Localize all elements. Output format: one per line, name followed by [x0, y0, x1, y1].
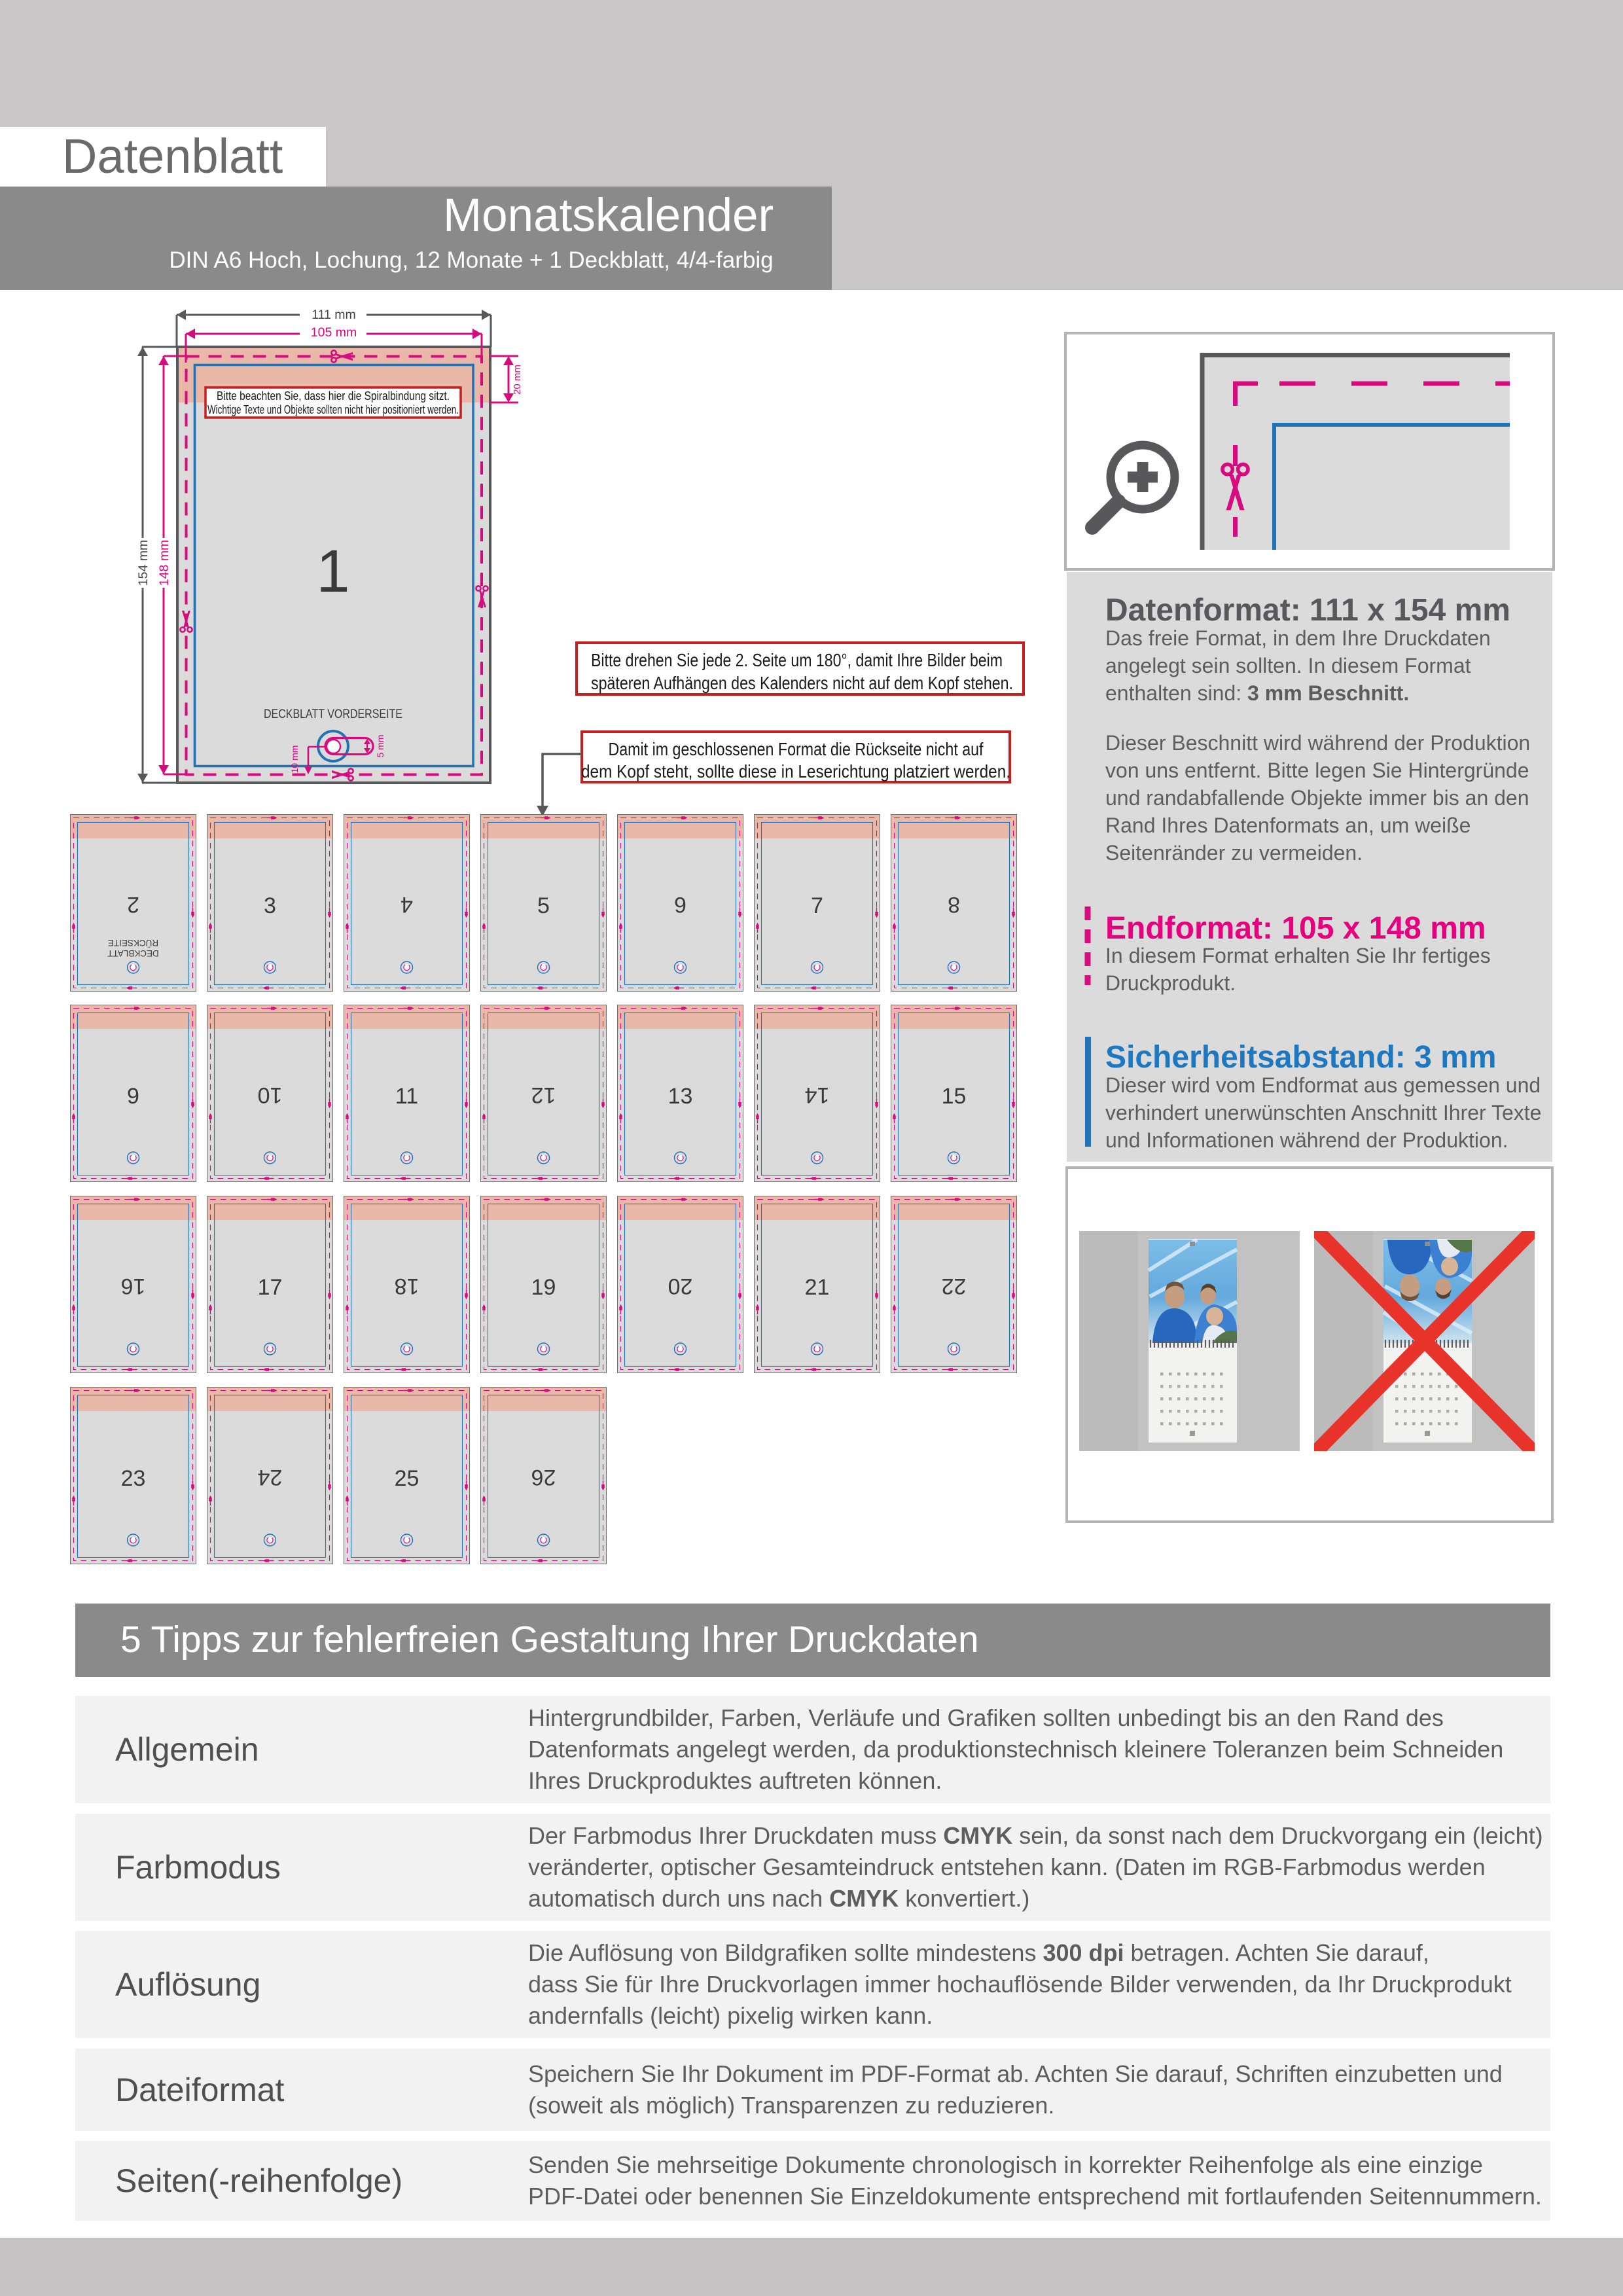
- svg-text:DECKBLATT: DECKBLATT: [107, 948, 159, 958]
- svg-text:18: 18: [395, 1274, 419, 1299]
- svg-text:6: 6: [674, 892, 687, 917]
- svg-text:5 mm: 5 mm: [375, 735, 385, 758]
- svg-text:8: 8: [948, 892, 960, 917]
- svg-text:14: 14: [805, 1083, 830, 1107]
- svg-text:17: 17: [258, 1275, 283, 1300]
- svg-text:16: 16: [121, 1274, 146, 1299]
- svg-text:2: 2: [127, 892, 139, 917]
- svg-text:148 mm: 148 mm: [157, 540, 171, 586]
- svg-text:3: 3: [264, 893, 276, 918]
- svg-text:13: 13: [668, 1084, 693, 1109]
- svg-text:23: 23: [121, 1466, 146, 1491]
- svg-text:DECKBLATT VORDERSEITE: DECKBLATT VORDERSEITE: [264, 707, 402, 721]
- svg-text:12: 12: [531, 1083, 556, 1107]
- svg-text:15: 15: [942, 1084, 967, 1109]
- svg-text:26: 26: [531, 1465, 556, 1490]
- svg-text:Damit im geschlossenen Format: Damit im geschlossenen Format die Rückse…: [609, 739, 984, 759]
- svg-text:20 mm: 20 mm: [512, 365, 523, 395]
- svg-text:21: 21: [805, 1275, 830, 1300]
- svg-text:7: 7: [811, 893, 823, 918]
- svg-text:RÜCKSEITE: RÜCKSEITE: [108, 938, 158, 948]
- svg-text:154 mm: 154 mm: [136, 540, 151, 586]
- svg-text:9: 9: [127, 1084, 139, 1109]
- svg-text:Wichtige Texte und Objekte sol: Wichtige Texte und Objekte sollten nicht…: [207, 403, 459, 416]
- svg-text:25: 25: [395, 1466, 419, 1491]
- svg-text:Bitte drehen Sie jede 2. Seite: Bitte drehen Sie jede 2. Seite um 180°, …: [591, 650, 1003, 670]
- svg-text:11: 11: [395, 1084, 418, 1109]
- svg-text:Bitte beachten Sie, dass hier: Bitte beachten Sie, dass hier die Spiral…: [217, 389, 450, 403]
- svg-text:10: 10: [258, 1083, 283, 1107]
- svg-text:105 mm: 105 mm: [311, 325, 357, 340]
- svg-text:19: 19: [531, 1275, 556, 1300]
- svg-text:111 mm: 111 mm: [312, 308, 356, 322]
- svg-text:10 mm: 10 mm: [289, 745, 300, 774]
- svg-text:22: 22: [942, 1274, 967, 1299]
- svg-text:1: 1: [316, 538, 349, 605]
- svg-text:20: 20: [668, 1274, 693, 1299]
- svg-text:5: 5: [537, 893, 550, 918]
- svg-text:24: 24: [258, 1465, 283, 1490]
- svg-text:späteren Aufhängen des Kalende: späteren Aufhängen des Kalenders nicht a…: [591, 673, 1013, 693]
- svg-text:4: 4: [401, 892, 413, 917]
- svg-text:dem Kopf steht, sollte diese i: dem Kopf steht, sollte diese in Leserich…: [581, 761, 1010, 781]
